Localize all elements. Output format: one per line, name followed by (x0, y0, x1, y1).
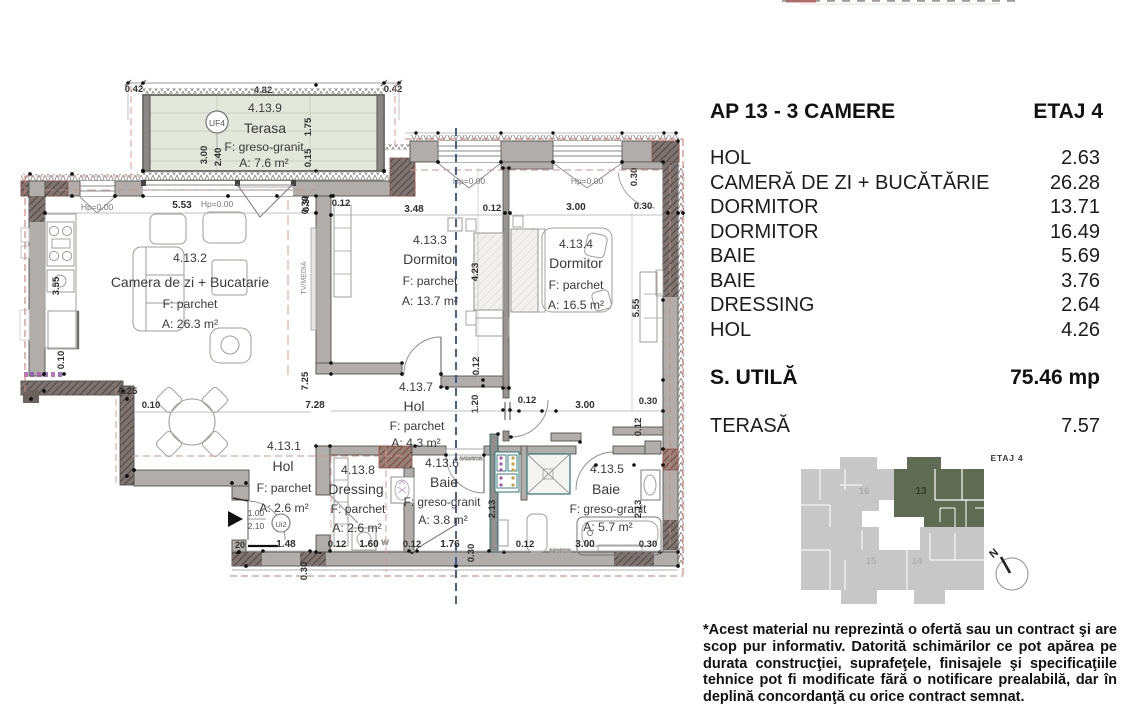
svg-text:Hp=0.00: Hp=0.00 (571, 176, 604, 186)
svg-text:Hp=0.00: Hp=0.00 (453, 176, 486, 186)
svg-text:RADIATOR: RADIATOR (460, 456, 484, 461)
svg-text:5.53: 5.53 (172, 200, 192, 211)
svg-text:0.30: 0.30 (300, 196, 311, 215)
svg-text:4.13.8: 4.13.8 (341, 463, 375, 477)
svg-text:1.20: 1.20 (470, 395, 481, 414)
svg-text:A: 16.5 m²: A: 16.5 m² (548, 298, 604, 312)
svg-text:16: 16 (859, 486, 870, 497)
svg-text:1.75: 1.75 (303, 117, 314, 136)
svg-text:N: N (987, 547, 1001, 561)
svg-text:4.13.7: 4.13.7 (399, 380, 433, 394)
svg-text:A: 5.7 m²: A: 5.7 m² (583, 520, 632, 534)
svg-text:20: 20 (235, 540, 245, 550)
svg-text:4.13.6: 4.13.6 (425, 456, 459, 470)
svg-text:UF4: UF4 (209, 118, 225, 128)
svg-text:3.00: 3.00 (566, 202, 586, 213)
svg-text:4.13.2: 4.13.2 (173, 251, 207, 265)
svg-text:0.10: 0.10 (56, 351, 67, 370)
svg-text:3.00: 3.00 (199, 146, 210, 165)
svg-text:3.55: 3.55 (51, 276, 62, 295)
svg-text:Camera de zi + Bucatarie: Camera de zi + Bucatarie (111, 274, 270, 290)
svg-text:15: 15 (866, 556, 877, 567)
svg-text:0.30: 0.30 (639, 539, 658, 550)
svg-text:4.13.4: 4.13.4 (559, 237, 593, 251)
svg-text:Hol: Hol (403, 398, 424, 414)
svg-text:13: 13 (915, 486, 927, 497)
svg-text:A: 4.3 m²: A: 4.3 m² (391, 436, 440, 450)
svg-text:W: W (381, 538, 389, 547)
svg-text:A: 3.8 m²: A: 3.8 m² (418, 513, 467, 527)
svg-text:A: 2.6 m²: A: 2.6 m² (259, 501, 308, 515)
svg-text:F: parchet: F: parchet (257, 481, 312, 495)
svg-text:0.30: 0.30 (299, 562, 310, 581)
svg-text:Dormitor: Dormitor (549, 255, 603, 271)
svg-text:RADIATOR: RADIATOR (549, 548, 570, 553)
svg-text:F: greso-granit: F: greso-granit (224, 140, 304, 154)
svg-text:0.12: 0.12 (518, 395, 537, 406)
svg-text:0.30: 0.30 (466, 544, 477, 563)
svg-text:0.42: 0.42 (125, 84, 144, 95)
svg-text:0.12: 0.12 (403, 539, 422, 550)
svg-text:Baie: Baie (430, 474, 458, 490)
svg-text:3.00: 3.00 (575, 539, 595, 550)
svg-text:4.13.9: 4.13.9 (248, 101, 282, 115)
svg-text:F: greso-granit: F: greso-granit (404, 495, 481, 509)
svg-text:4.13.1: 4.13.1 (267, 439, 301, 453)
svg-text:7.28: 7.28 (305, 400, 325, 411)
svg-text:4.13.3: 4.13.3 (413, 233, 447, 247)
svg-text:2.13: 2.13 (487, 500, 498, 519)
svg-text:0.30: 0.30 (629, 168, 640, 187)
svg-text:1.60: 1.60 (359, 539, 379, 550)
svg-text:0.25: 0.25 (119, 386, 138, 397)
svg-text:Hp=0.00: Hp=0.00 (201, 199, 234, 209)
svg-text:0.30: 0.30 (639, 396, 658, 407)
svg-text:0.12: 0.12 (516, 539, 535, 550)
svg-text:F: parchet: F: parchet (390, 419, 445, 433)
svg-text:Dressing: Dressing (328, 481, 383, 497)
svg-text:0.12: 0.12 (471, 357, 482, 376)
svg-text:TV/MEDIA: TV/MEDIA (301, 261, 308, 294)
svg-text:Hol: Hol (272, 458, 293, 474)
svg-text:0.30: 0.30 (634, 201, 653, 212)
svg-text:F: parchet: F: parchet (549, 278, 604, 292)
svg-text:F: parchet: F: parchet (403, 274, 458, 288)
svg-text:A: 13.7 m²: A: 13.7 m² (402, 294, 458, 308)
svg-text:Dormitor: Dormitor (403, 251, 457, 267)
svg-text:F: parchet: F: parchet (163, 297, 218, 311)
svg-text:0.42: 0.42 (384, 84, 403, 95)
svg-text:0.12: 0.12 (328, 539, 347, 550)
svg-text:0.15: 0.15 (303, 148, 314, 167)
svg-text:Baie: Baie (592, 481, 620, 497)
svg-text:A: 7.6 m²: A: 7.6 m² (239, 156, 288, 170)
svg-text:2.10: 2.10 (248, 521, 265, 531)
svg-text:1.76: 1.76 (440, 539, 460, 550)
svg-text:0.12: 0.12 (332, 198, 351, 209)
svg-text:7.25: 7.25 (300, 371, 311, 390)
svg-text:Hp=0.00: Hp=0.00 (81, 202, 114, 212)
svg-text:A: 2.6 m²: A: 2.6 m² (332, 521, 381, 535)
svg-text:0.10: 0.10 (142, 400, 161, 411)
svg-text:2.40: 2.40 (213, 148, 224, 167)
svg-text:F: parchet: F: parchet (331, 502, 386, 516)
svg-text:4.23: 4.23 (470, 263, 481, 282)
svg-text:1.48: 1.48 (276, 539, 296, 550)
svg-text:0.12: 0.12 (483, 203, 502, 214)
svg-text:A: 26.3 m²: A: 26.3 m² (162, 317, 218, 331)
svg-text:3.00: 3.00 (575, 400, 595, 411)
svg-text:5.55: 5.55 (631, 298, 642, 317)
svg-text:14: 14 (912, 556, 923, 567)
svg-text:0.12: 0.12 (633, 418, 644, 437)
svg-text:Ui2: Ui2 (275, 520, 286, 529)
svg-text:Terasa: Terasa (244, 120, 286, 136)
svg-text:2.13: 2.13 (633, 500, 644, 519)
svg-text:ETAJ 4: ETAJ 4 (991, 453, 1024, 463)
svg-text:3.48: 3.48 (404, 204, 424, 215)
